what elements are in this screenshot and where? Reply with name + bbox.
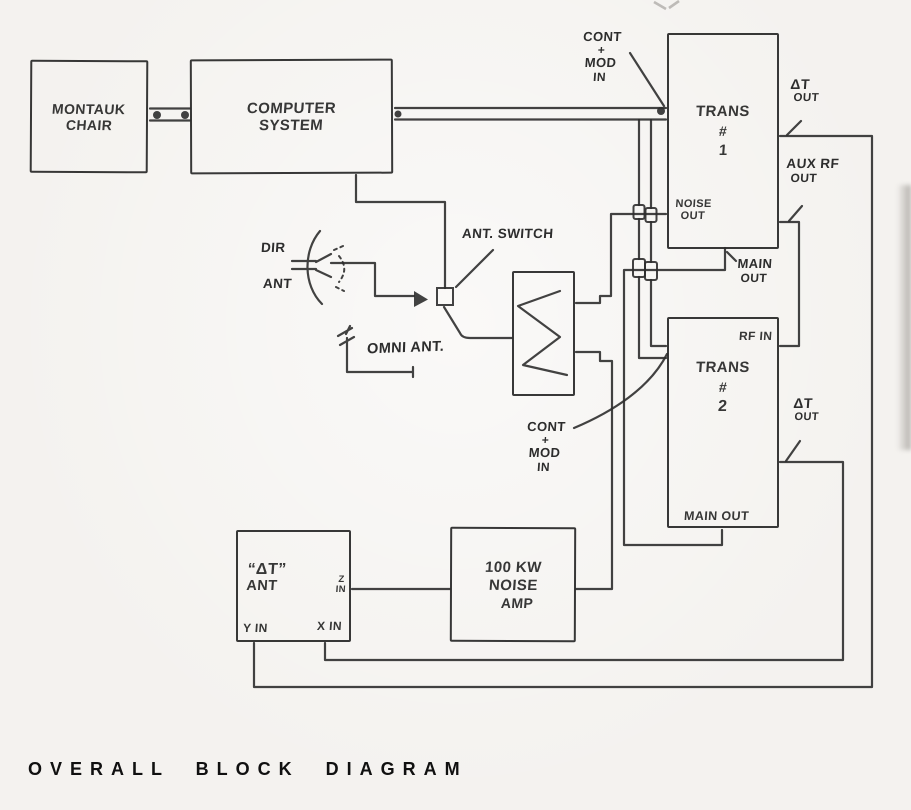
wire-cont-mod-vertical-1 bbox=[639, 120, 666, 358]
cont-mod-in-top-label: CONT + MOD IN bbox=[570, 30, 632, 84]
annotation-line: OUT bbox=[740, 272, 772, 286]
wire-computer-to-ant-switch bbox=[356, 175, 445, 288]
box-label-line: TRANS bbox=[696, 359, 751, 376]
pointer-cont-mod-top bbox=[630, 53, 664, 106]
pointer-ant-switch bbox=[456, 250, 493, 287]
aux-rf-out-label: AUX RF OUT bbox=[785, 156, 840, 185]
box-label-line: # bbox=[718, 379, 727, 395]
noise-amp-box: 100 KW NOISE AMP bbox=[450, 527, 576, 642]
trans-2-box: RF IN TRANS # 2 MAIN OUT bbox=[667, 317, 779, 528]
trans2-main-out-port: MAIN OUT bbox=[684, 510, 750, 523]
pointer-trans1-delta-t bbox=[787, 121, 801, 135]
port-label-line: OUT bbox=[680, 211, 711, 223]
computer-system-box: COMPUTER SYSTEM bbox=[190, 59, 393, 175]
annotation-line: MAIN bbox=[737, 257, 773, 272]
zigzag-attenuator-box bbox=[512, 271, 575, 396]
annotation-line: IN bbox=[593, 71, 607, 85]
montauk-chair-label: MONTAUK CHAIR bbox=[32, 62, 147, 172]
annotation-line: OUT bbox=[793, 92, 819, 105]
switch-arrowhead bbox=[414, 291, 428, 307]
page-edge-shadow bbox=[897, 185, 911, 450]
wire-aux-rf-to-rf-in bbox=[780, 222, 799, 346]
dir-ant-label-line1: DIR bbox=[260, 240, 286, 256]
port-label-line: IN bbox=[335, 585, 346, 595]
annotation-line: MOD bbox=[584, 56, 617, 71]
box-label-line: # bbox=[718, 123, 727, 139]
annotation-line: ΔT bbox=[790, 76, 821, 92]
scan-smudge bbox=[654, 1, 679, 9]
dir-ant-symbol bbox=[292, 231, 331, 304]
montauk-chair-box: MONTAUK CHAIR bbox=[30, 60, 149, 174]
box-label-line: 100 KW bbox=[484, 558, 542, 575]
box-label-line: SYSTEM bbox=[259, 116, 324, 133]
trans-2-label: TRANS # 2 bbox=[669, 319, 777, 526]
annotation-line: MOD bbox=[528, 446, 561, 461]
annotation-line: OUT bbox=[794, 411, 819, 424]
connector-dot-trans1-in bbox=[657, 107, 665, 115]
wire-noise-out bbox=[576, 214, 666, 303]
box-label-line: ANT bbox=[246, 579, 286, 594]
trans1-delta-t-out-label: ΔT OUT bbox=[789, 76, 821, 105]
computer-system-label: COMPUTER SYSTEM bbox=[192, 61, 391, 173]
box-label-line: NOISE bbox=[488, 576, 538, 593]
ant-switch-label: ANT. SWITCH bbox=[461, 226, 553, 242]
box-label-line: CHAIR bbox=[65, 116, 113, 132]
omni-ant-label: OMNI ANT. bbox=[367, 339, 445, 358]
ant-x-in-port: X IN bbox=[317, 620, 343, 633]
trans1-noise-out-port: NOISE OUT bbox=[674, 199, 712, 222]
pointer-aux-rf bbox=[789, 206, 802, 221]
ant-z-in-port: Z IN bbox=[335, 575, 347, 595]
box-label-line: “ΔT” bbox=[247, 562, 287, 579]
noise-amp-label: 100 KW NOISE AMP bbox=[452, 529, 574, 640]
pointer-trans2-delta-t bbox=[786, 441, 800, 461]
pointer-cont-mod-bottom bbox=[574, 354, 667, 428]
connector-symbol bbox=[633, 259, 645, 277]
box-label-line: MONTAUK bbox=[52, 100, 127, 116]
trans2-delta-t-out-label: ΔT OUT bbox=[792, 395, 820, 424]
ant-y-in-port: Y IN bbox=[243, 622, 269, 635]
annotation-line: OUT bbox=[790, 172, 839, 186]
connector-dot-chair bbox=[153, 111, 161, 119]
diagram-title: OVERALL BLOCK DIAGRAM bbox=[28, 759, 468, 780]
ant-switch-box bbox=[437, 288, 453, 305]
wire-cont-mod-vertical-2 bbox=[651, 120, 666, 346]
box-label-line: 1 bbox=[718, 142, 728, 159]
trans-1-box: TRANS # 1 NOISE OUT bbox=[667, 33, 779, 249]
box-label-line: 2 bbox=[718, 398, 729, 416]
delta-t-ant-label: “ΔT” ANT bbox=[246, 562, 287, 594]
annotation-line: IN bbox=[537, 461, 551, 475]
annotation-line: ΔT bbox=[793, 395, 821, 411]
dir-ant-label-line2: ANT bbox=[262, 276, 292, 292]
pointer-main-out-1 bbox=[727, 252, 736, 261]
delta-t-ant-box: “ΔT” ANT Z IN Y IN X IN bbox=[236, 530, 351, 642]
cont-mod-in-bottom-label: CONT + MOD IN bbox=[514, 420, 576, 474]
box-label-line: TRANS bbox=[696, 103, 751, 120]
trans1-main-out-label: MAIN OUT bbox=[736, 257, 773, 286]
port-label-line: NOISE bbox=[675, 199, 712, 211]
scanned-block-diagram-page: MONTAUK CHAIR COMPUTER SYSTEM TRANS # 1 … bbox=[0, 0, 911, 810]
trans2-rf-in-port: RF IN bbox=[738, 330, 772, 343]
dir-ant-radiation-dashes bbox=[334, 246, 344, 291]
wire-switch-arm bbox=[444, 307, 512, 338]
annotation-line: AUX RF bbox=[786, 156, 840, 172]
wire-zigzag-to-noise-amp bbox=[576, 352, 612, 589]
box-label-line: COMPUTER bbox=[246, 99, 336, 116]
connector-dot-computer-left bbox=[181, 111, 189, 119]
box-label-line: AMP bbox=[500, 594, 533, 610]
connector-symbol bbox=[634, 205, 645, 219]
connector-dot-computer-right bbox=[395, 111, 402, 118]
